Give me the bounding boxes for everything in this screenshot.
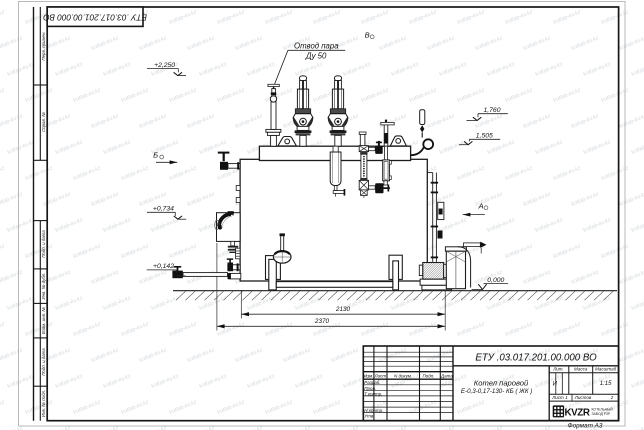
svg-text:Лист: Лист [551, 395, 564, 400]
svg-text:N докум.: N докум. [394, 374, 412, 379]
svg-text:Справ. №: Справ. № [41, 112, 46, 132]
svg-text:2370: 2370 [314, 318, 330, 325]
svg-text:+0,734: +0,734 [153, 206, 174, 213]
svg-text:Утв.: Утв. [364, 414, 374, 419]
svg-text:Подп. и дата: Подп. и дата [41, 230, 46, 258]
svg-text:Н.контр.: Н.контр. [364, 408, 383, 413]
svg-text:1,760: 1,760 [483, 107, 500, 114]
svg-text:Перв. примен.: Перв. примен. [41, 31, 46, 60]
svg-text:1,505: 1,505 [476, 133, 493, 140]
svg-text:KVZR: KVZR [565, 408, 590, 419]
svg-text:2130: 2130 [335, 306, 351, 313]
svg-text:Инв. № дубл.: Инв. № дубл. [41, 272, 46, 299]
svg-text:Изм.: Изм. [364, 374, 374, 379]
svg-text:Листов: Листов [574, 395, 592, 400]
svg-text:ЕТУ .03.017.201.00.000 ВО: ЕТУ .03.017.201.00.000 ВО [43, 13, 147, 23]
svg-text:Подп. и дата: Подп. и дата [41, 348, 46, 376]
svg-text:Отвод пара: Отвод пара [294, 42, 339, 51]
svg-text:Масштаб: Масштаб [595, 367, 616, 372]
svg-text:И: И [553, 381, 558, 387]
svg-text:Лит.: Лит. [552, 367, 564, 372]
svg-text:Е-0,3-0,17-130- КБ ( ЖК ): Е-0,3-0,17-130- КБ ( ЖК ) [461, 388, 532, 395]
svg-text:Взам. инв. №: Взам. инв. № [41, 307, 46, 334]
svg-text:Пров.: Пров. [364, 386, 376, 391]
svg-text:КОТЕЛЬНЫЙ: КОТЕЛЬНЫЙ [592, 408, 614, 412]
svg-text:2: 2 [610, 395, 614, 400]
svg-text:+0,142: +0,142 [153, 263, 174, 270]
svg-text:Разраб.: Разраб. [364, 380, 380, 385]
svg-text:В: В [365, 31, 370, 40]
svg-text:1:15: 1:15 [600, 381, 612, 387]
svg-text:Формат А3: Формат А3 [568, 423, 603, 430]
svg-text:ЕТУ .03.017.201.00.000 ВО: ЕТУ .03.017.201.00.000 ВО [475, 353, 597, 364]
svg-text:Инв. № подл.: Инв. № подл. [41, 390, 46, 417]
svg-text:А: А [477, 201, 483, 210]
svg-text:Котел паровой: Котел паровой [474, 378, 529, 387]
svg-text:Б: Б [153, 151, 158, 160]
svg-text:Дата: Дата [440, 374, 453, 379]
svg-text:Ду 50: Ду 50 [305, 52, 327, 61]
svg-text:Т.контр.: Т.контр. [364, 391, 382, 396]
svg-text:Лист: Лист [374, 374, 387, 379]
svg-text:+2,250: +2,250 [154, 62, 175, 69]
svg-text:Подп.: Подп. [423, 374, 435, 379]
svg-text:ЗАВОД РЗР: ЗАВОД РЗР [592, 412, 611, 416]
svg-text:Масса: Масса [574, 367, 588, 372]
